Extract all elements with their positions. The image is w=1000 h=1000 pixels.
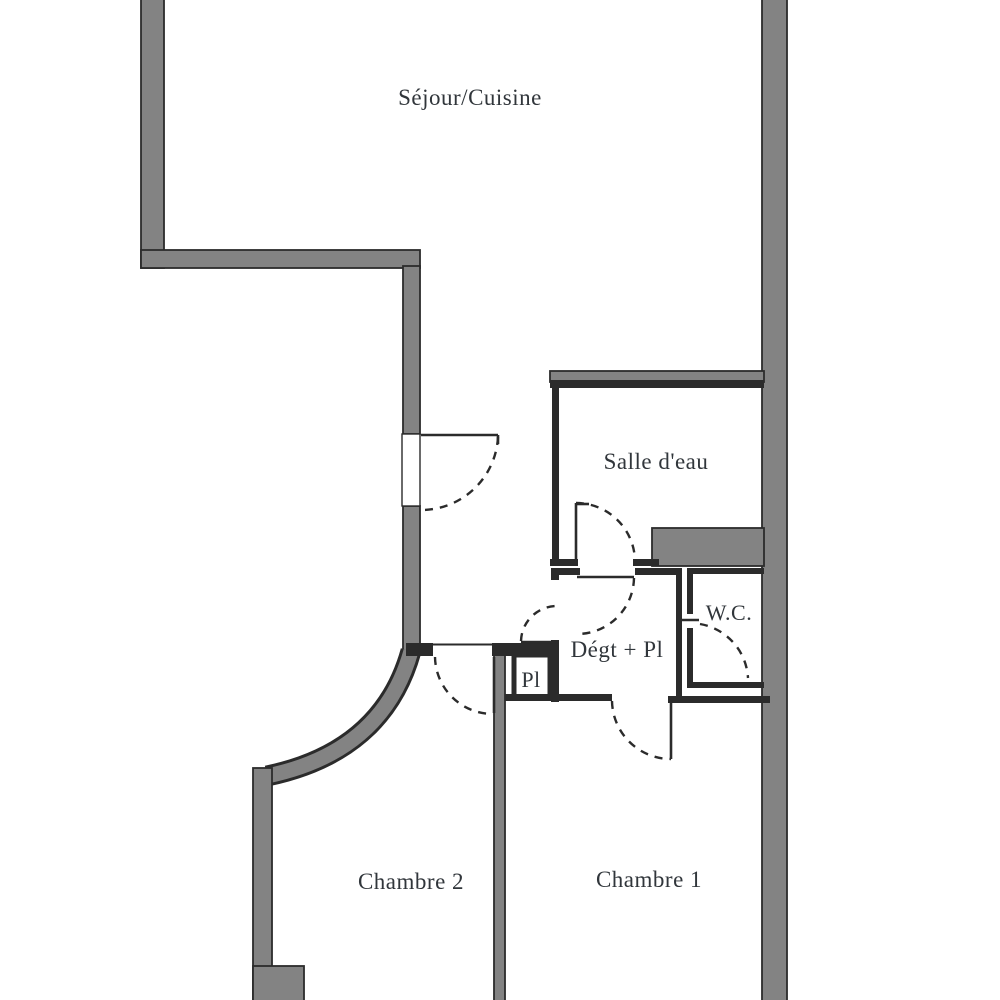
floor-plan-canvas: Séjour/Cuisine Salle d'eau Dégt + Pl W.C…: [0, 0, 1000, 1000]
entrance-opening: [402, 434, 420, 506]
wall-exterior-right: [762, 0, 787, 1000]
wall-wc-left-lower: [687, 628, 693, 688]
room-label-chambre-1: Chambre 1: [596, 867, 702, 892]
wall-corridor-lower: [403, 506, 420, 652]
wall-wc-left-upper: [687, 568, 693, 614]
wall-wc-bottom: [687, 682, 764, 688]
room-label-wc: W.C.: [706, 600, 752, 625]
chambre1-door-arc: [612, 701, 671, 759]
degt-salle-eau-door-arc: [578, 578, 634, 634]
wc-door-arc: [700, 624, 748, 678]
wall-chambre-divider: [494, 650, 505, 1000]
room-label-degt-pl: Dégt + Pl: [571, 637, 664, 662]
degt-entry-door-arc: [521, 606, 557, 641]
chambre2-door-arc: [435, 657, 493, 714]
wall-salle-eau-left: [552, 380, 559, 566]
wall-exterior-left-top: [141, 0, 164, 268]
floor-plan-drawing: Séjour/Cuisine Salle d'eau Dégt + Pl W.C…: [0, 0, 1000, 1000]
wall-block-salle-eau-wc: [652, 528, 764, 566]
wall-salle-eau-bottom-left: [550, 559, 578, 566]
wall-chambre1-top-right: [668, 696, 770, 703]
room-label-sejour-cuisine: Séjour/Cuisine: [398, 85, 542, 110]
wall-salle-eau-top: [550, 380, 764, 388]
wall-corridor-upper: [403, 266, 420, 434]
wall-degt-top-left: [551, 568, 580, 575]
wall-salle-eau-bottom-right: [633, 559, 659, 566]
wall-exterior-horizontal: [141, 250, 420, 268]
room-label-pl: Pl: [521, 667, 540, 692]
wall-wc-top: [687, 568, 764, 574]
room-label-chambre-2: Chambre 2: [358, 869, 464, 894]
wall-degt-top-right: [635, 568, 682, 575]
entrance-door-arc: [423, 437, 498, 510]
wall-bottom-step: [253, 966, 304, 1000]
wall-degt-right: [676, 568, 682, 697]
salle-eau-door-arc: [576, 503, 635, 561]
room-label-salle-d-eau: Salle d'eau: [604, 449, 709, 474]
